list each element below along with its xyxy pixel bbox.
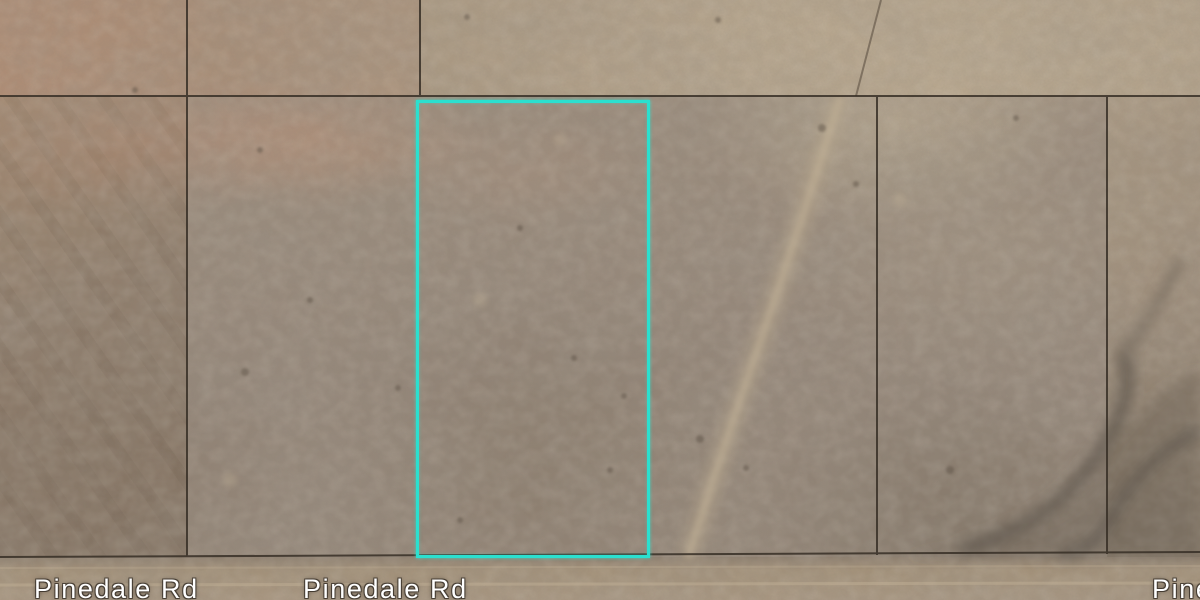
- selected-parcel-boundary[interactable]: [416, 100, 650, 558]
- road-label-pinedale-2: Pinedale Rd: [303, 576, 468, 600]
- satellite-map-viewport[interactable]: Pinedale Rd Pinedale Rd Pinedale Rd: [0, 0, 1200, 600]
- road-label-pinedale-3: Pinedale Rd: [1152, 576, 1200, 600]
- road-label-pinedale-1: Pinedale Rd: [34, 576, 199, 600]
